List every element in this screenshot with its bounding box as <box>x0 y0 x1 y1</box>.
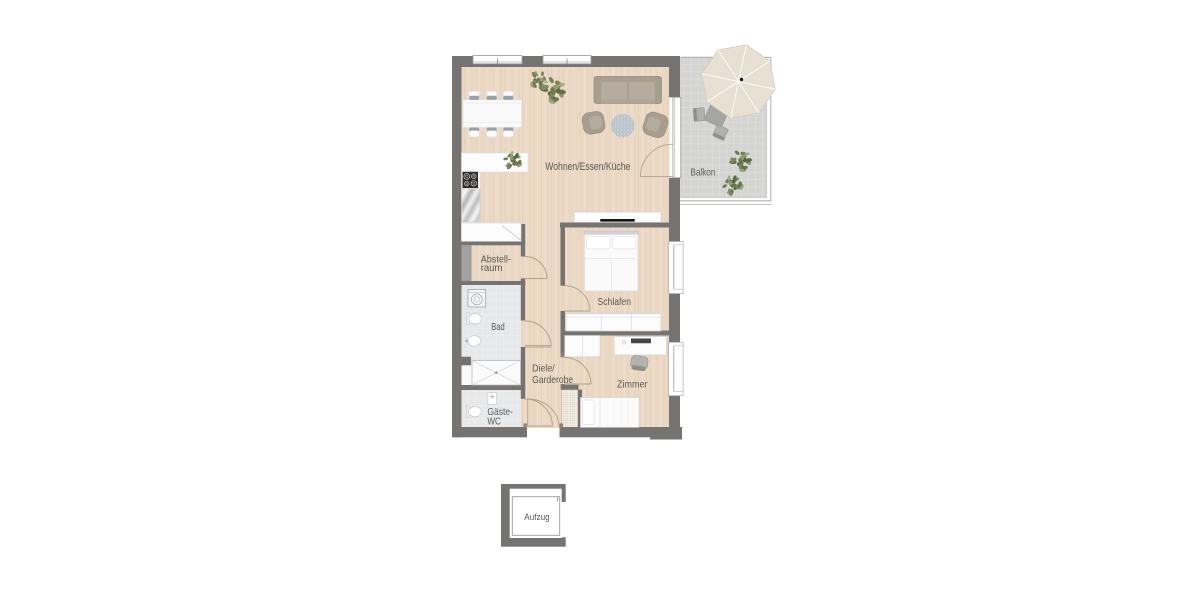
svg-text:Diele/: Diele/ <box>532 363 555 375</box>
svg-text:Zimmer: Zimmer <box>617 379 648 391</box>
svg-text:Wohnen/Essen/Küche: Wohnen/Essen/Küche <box>545 161 630 173</box>
svg-text:WC: WC <box>487 416 501 428</box>
svg-text:Aufzug: Aufzug <box>524 512 549 523</box>
svg-text:Schlafen: Schlafen <box>598 296 632 308</box>
svg-text:Balkon: Balkon <box>690 167 715 179</box>
svg-text:raum: raum <box>481 262 503 274</box>
svg-text:Garderobe: Garderobe <box>532 374 573 386</box>
svg-text:Bad: Bad <box>491 321 505 333</box>
